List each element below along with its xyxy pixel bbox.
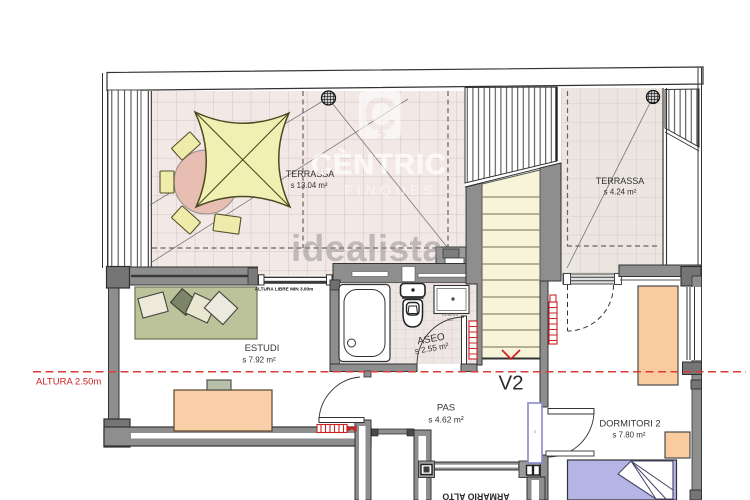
svg-text:s 4.24 m²: s 4.24 m² (604, 188, 637, 197)
svg-text:s 13.04 m²: s 13.04 m² (291, 181, 328, 190)
svg-text:ARMARIO ALTO: ARMARIO ALTO (442, 492, 509, 500)
svg-text:idealista: idealista (291, 228, 444, 269)
svg-text:ALT: ALT (446, 317, 454, 322)
svg-text:PAS: PAS (437, 403, 455, 414)
svg-text:s 7.92 m²: s 7.92 m² (242, 356, 276, 365)
svg-text:V2: V2 (498, 372, 523, 395)
svg-text:TERRASSA: TERRASSA (596, 176, 645, 186)
svg-text:s 4.62 m²: s 4.62 m² (428, 415, 464, 425)
svg-text:DORMITORI 2: DORMITORI 2 (599, 418, 660, 429)
svg-text:ALTURA LIBRE MIN 3.00m: ALTURA LIBRE MIN 3.00m (255, 287, 314, 292)
svg-text:ESTUDI: ESTUDI (245, 343, 280, 354)
svg-text:FINQUES: FINQUES (344, 182, 438, 198)
svg-text:ALTURA 2.50m: ALTURA 2.50m (36, 377, 101, 388)
svg-text:s 7.80 m²: s 7.80 m² (613, 431, 646, 440)
svg-text:CÈNTRIC: CÈNTRIC (311, 147, 447, 181)
